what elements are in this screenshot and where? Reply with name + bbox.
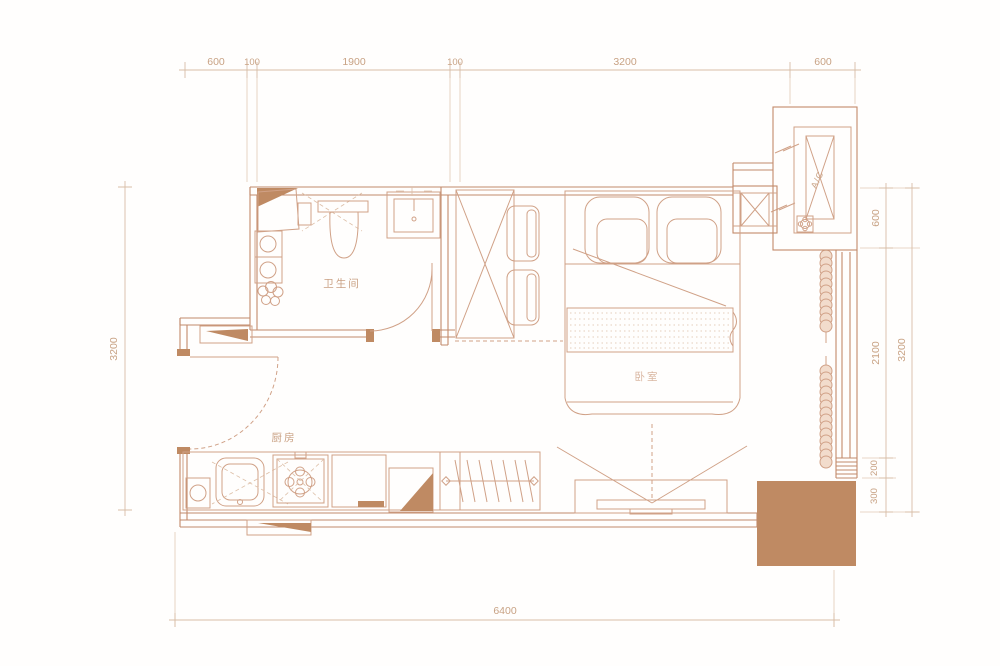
bedroom-label: 卧室: [635, 370, 660, 383]
door-jamb: [432, 329, 440, 342]
entry-area: 厨房: [190, 326, 297, 449]
kitchen-label: 厨房: [272, 431, 297, 444]
bathroom-area: 卫生间: [255, 187, 440, 331]
dimension-left: 3200: [108, 181, 132, 516]
dimension-bottom: 6400: [169, 532, 840, 627]
blanket: [567, 308, 733, 352]
kitchen-counter: [183, 452, 460, 535]
dim-top-100a: 100: [244, 57, 260, 68]
dim-right-2100: 2100: [870, 341, 882, 365]
toilet-icon: [318, 201, 368, 258]
door-jamb: [177, 349, 190, 356]
dim-top-1900: 1900: [342, 56, 366, 68]
tv-cabinet-icon: [557, 446, 747, 514]
dim-top-100b: 100: [447, 57, 463, 68]
bathroom-door: [370, 263, 432, 331]
corner-unit-icon: [186, 478, 210, 508]
dim-left-3200: 3200: [108, 337, 120, 361]
entry-door: [190, 357, 278, 449]
dim-top-600b: 600: [814, 56, 832, 68]
dim-right-300: 300: [869, 488, 880, 504]
wardrobe-hangers-icon: [440, 452, 540, 510]
dim-top-600a: 600: [207, 56, 225, 68]
cabinet-icon: [389, 468, 433, 512]
floorplan-drawing: 600 100 1900 100 3200 600 3200 600 2100 …: [0, 0, 1000, 666]
dim-right-600: 600: [870, 209, 882, 227]
dim-right-200: 200: [869, 460, 880, 476]
dim-top-3200: 3200: [613, 56, 637, 68]
floorplan-page: 600 100 1900 100 3200 600 3200 600 2100 …: [0, 0, 1000, 666]
pillow-icon: [585, 197, 649, 263]
bathroom-label: 卫生间: [323, 277, 361, 290]
stove-icon: [273, 452, 328, 507]
fridge-icon: [332, 455, 386, 507]
tall-cabinet-icon: [456, 190, 514, 338]
ac-platform: A/C: [733, 107, 857, 250]
dim-bottom-6400: 6400: [493, 605, 517, 617]
bedroom-area: 卧室: [565, 191, 740, 500]
chairs: [507, 206, 539, 325]
shoe-cabinet-icon: [200, 326, 252, 343]
dimension-right: 600 2100 200 300 3200: [860, 183, 920, 517]
washer-icon: [255, 231, 282, 283]
vent-fan-icon: [797, 216, 813, 232]
window-wall: [836, 250, 857, 478]
dim-right-3200: 3200: [896, 338, 908, 362]
plant-icon: [258, 282, 283, 306]
curtain-icon: [820, 250, 832, 468]
structural-block: [757, 481, 856, 566]
